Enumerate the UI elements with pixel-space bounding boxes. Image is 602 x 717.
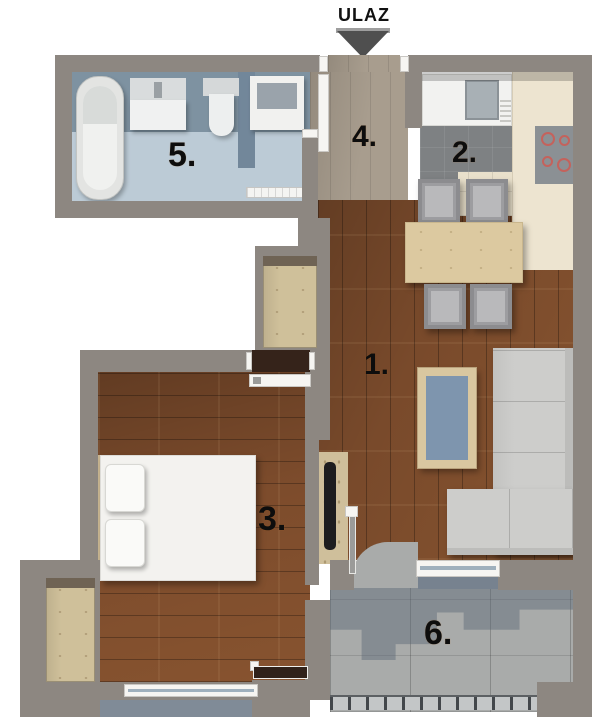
burner-icon	[557, 158, 571, 172]
closet-niche-hallway	[263, 256, 317, 348]
bathtub-headrest	[83, 86, 117, 124]
exterior-paving-strip	[98, 700, 255, 717]
room-label-hallway: 4.	[352, 122, 377, 152]
entrance-label: ULAZ	[319, 5, 409, 26]
entrance-door-frame-right	[400, 56, 409, 72]
wall-bathroom-hallway	[302, 138, 318, 218]
dining-chair	[424, 284, 466, 329]
coffee-table	[418, 368, 476, 468]
wall-bedroom-corner-block	[252, 680, 310, 717]
entrance-door-frame-left	[319, 56, 328, 72]
kitchen-wall-shadow	[420, 72, 573, 81]
washing-machine-lid	[257, 83, 297, 109]
floor-plan: ULAZ	[0, 0, 602, 717]
bathroom-radiator	[246, 187, 308, 198]
entrance-arrow-icon	[337, 31, 389, 58]
room-label-terrace: 6.	[424, 616, 452, 650]
wall-bedroom-top-left	[80, 350, 252, 372]
bedroom-door-frame-right	[309, 352, 315, 370]
room-label-living-room: 1.	[364, 350, 389, 380]
wall-right	[573, 55, 592, 690]
room-label-bedroom: 3.	[258, 502, 286, 536]
tv	[324, 462, 336, 550]
wall-bathroom-left	[55, 55, 72, 218]
toilet-bowl	[209, 94, 234, 136]
balcony-door-leaf	[349, 516, 356, 574]
pillow	[105, 519, 145, 567]
burner-icon	[542, 156, 553, 167]
hallway-floor-threshold	[328, 55, 400, 73]
burner-icon	[559, 135, 570, 146]
sink-faucet	[154, 82, 162, 98]
bedroom-door-handle	[253, 377, 261, 384]
room-label-bathroom: 5.	[168, 138, 196, 172]
wall-bathroom-bottom	[55, 201, 310, 218]
pillow	[105, 464, 145, 512]
sink-drainer	[500, 98, 511, 122]
kitchen-sink	[465, 80, 499, 120]
dining-chair	[470, 284, 512, 329]
wall-terrace-right	[498, 560, 573, 590]
sofa-section-horizontal	[447, 489, 573, 555]
burner-icon	[541, 132, 555, 146]
closet-niche-hallway-shadow	[263, 256, 317, 266]
bedroom-door-opening	[252, 350, 310, 372]
tv-partition-wall	[305, 440, 319, 585]
living-room-window-sill	[418, 577, 498, 589]
wall-bottom-right-block	[537, 682, 592, 717]
bathroom-sink	[130, 100, 186, 130]
wall-hallway-kitchen	[405, 72, 422, 128]
bathroom-door-leaf	[318, 74, 329, 152]
dining-table	[405, 222, 523, 283]
bedroom-door-frame-left	[246, 352, 252, 370]
bedroom-window-glass	[128, 689, 254, 692]
wall-top-left	[55, 55, 320, 72]
room-label-kitchen: 2.	[452, 138, 477, 168]
bedroom-terrace-door-leaf	[253, 666, 308, 679]
closet-niche-bedroom	[46, 578, 95, 682]
bathroom-door-frame	[302, 129, 318, 138]
wall-top-right	[408, 55, 592, 72]
terrace-railing	[330, 695, 544, 710]
dining-chair	[466, 179, 508, 224]
closet-niche-bedroom-shadow	[46, 578, 95, 588]
living-room-window-glass	[420, 566, 496, 570]
dining-chair	[418, 179, 460, 224]
